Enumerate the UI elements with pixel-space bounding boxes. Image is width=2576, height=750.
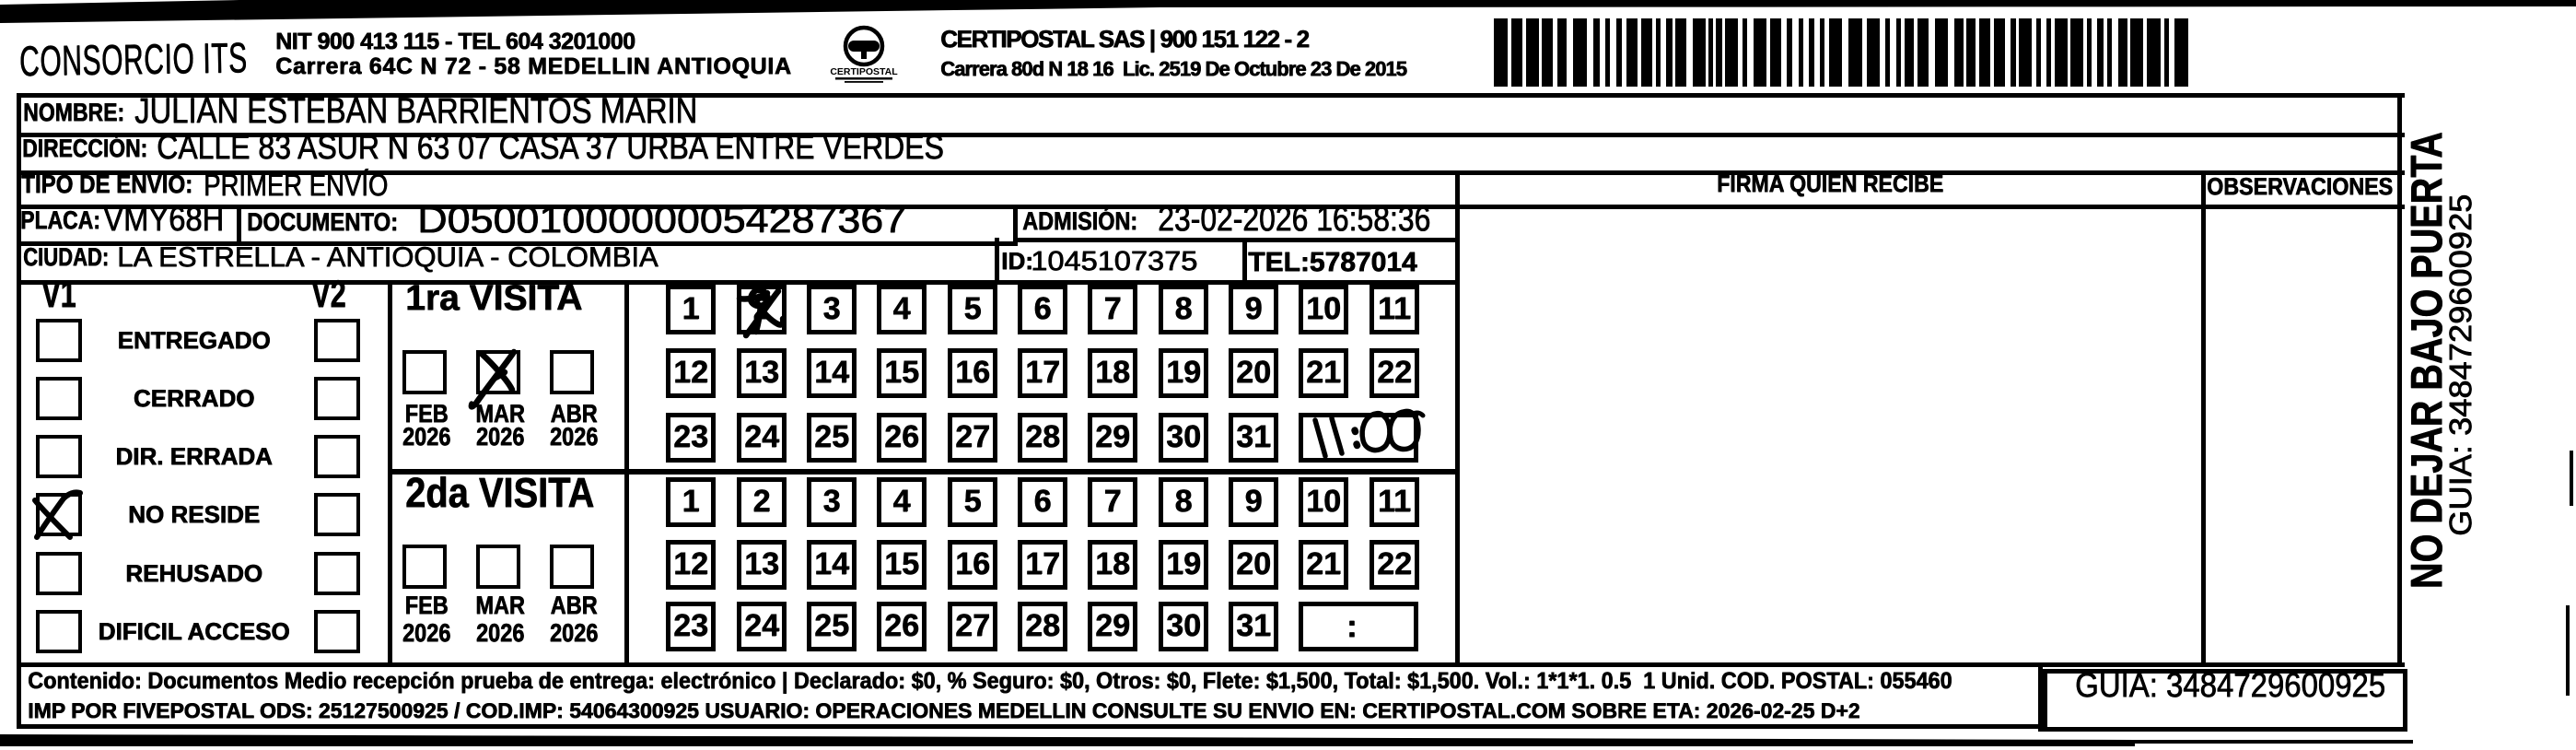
svg-text:CERTIPOSTAL: CERTIPOSTAL bbox=[830, 66, 898, 77]
